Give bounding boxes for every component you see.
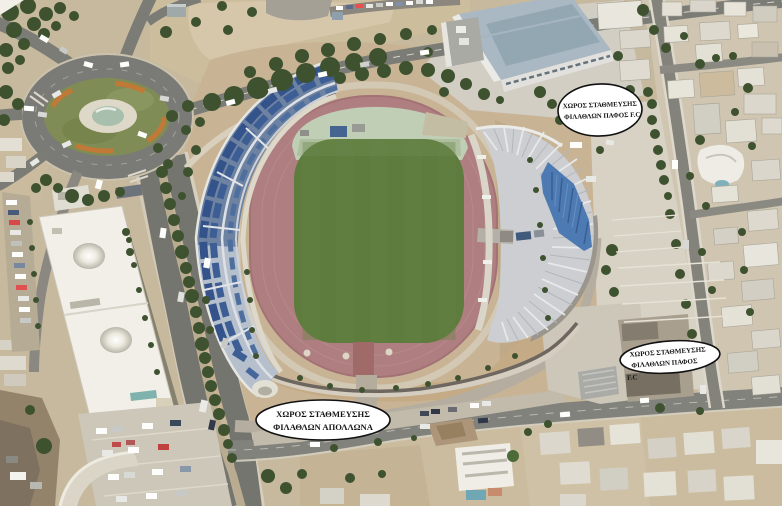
svg-text:ΦΙΛΑΘΛΩΝ ΑΠΟΛΛΩΝΑ: ΦΙΛΑΘΛΩΝ ΑΠΟΛΛΩΝΑ — [273, 422, 374, 432]
svg-text:ΧΩΡΟΣ ΣΤΑΘΜΕΥΣΗΣ: ΧΩΡΟΣ ΣΤΑΘΜΕΥΣΗΣ — [276, 409, 370, 419]
svg-text:F.C: F.C — [627, 373, 638, 382]
